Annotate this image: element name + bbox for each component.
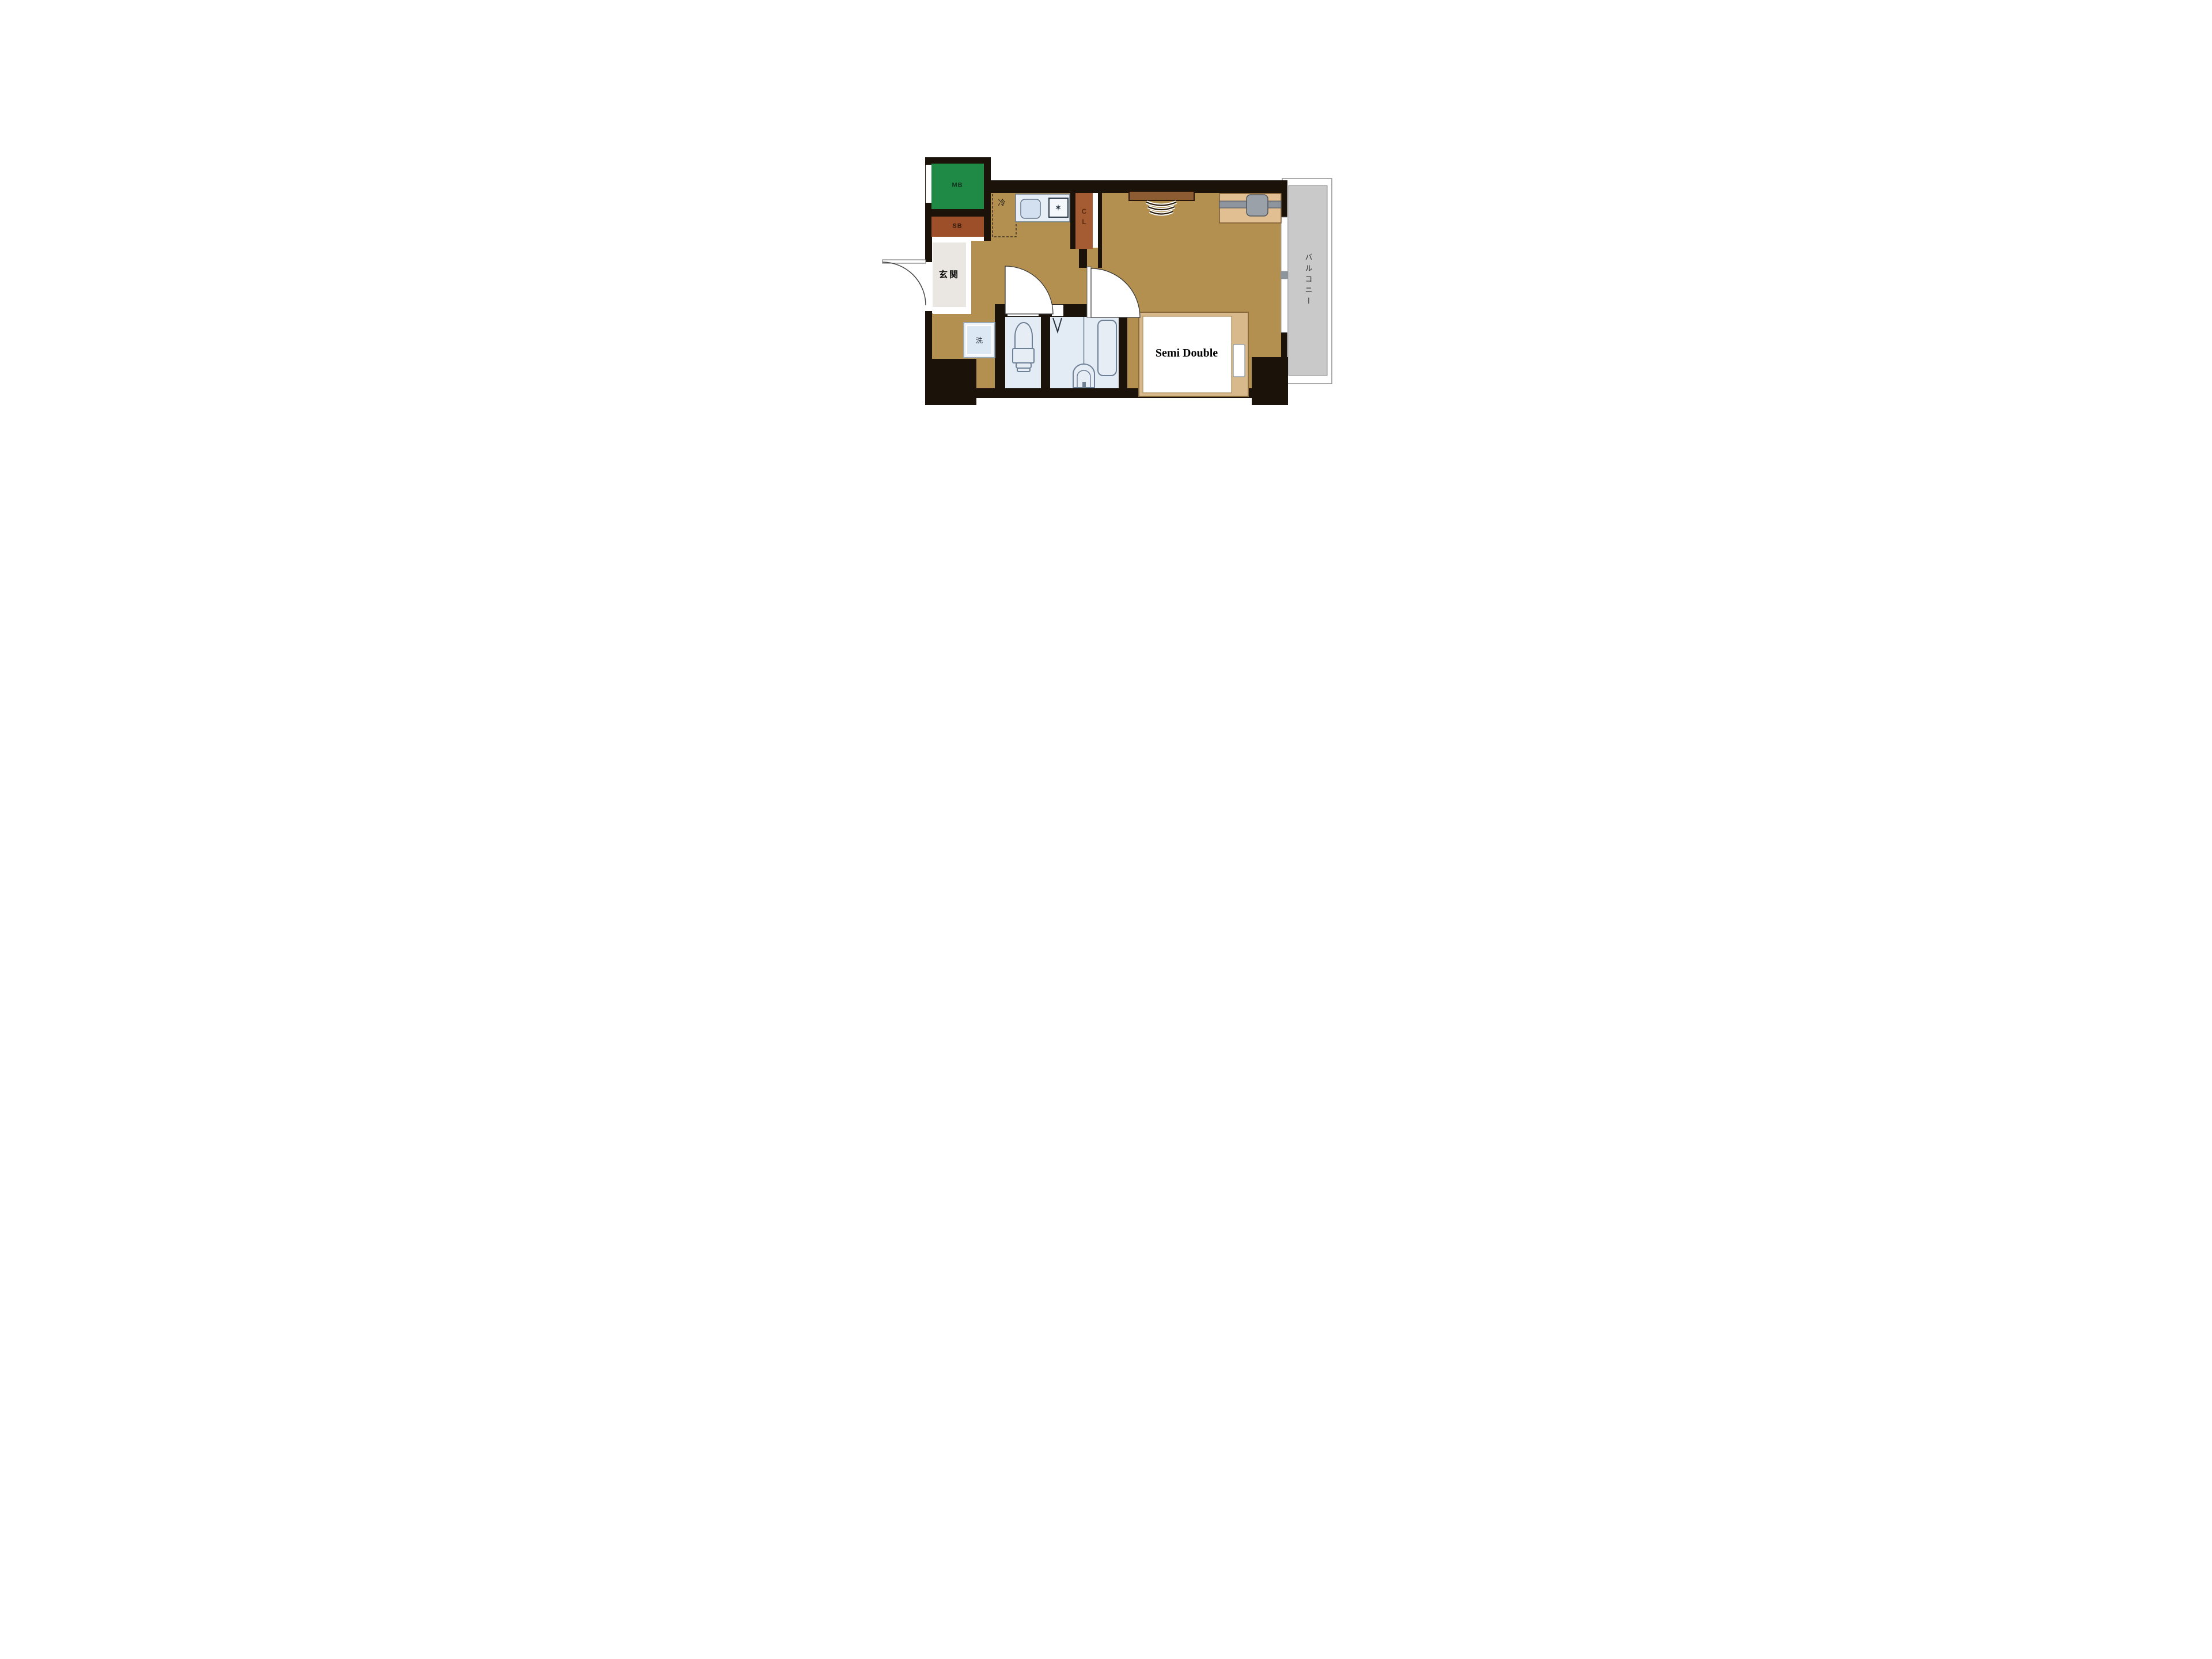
floor-plan-drawing (737, 0, 1475, 553)
entrance-label: 玄関 (939, 271, 960, 279)
balcony-windows (1281, 217, 1288, 332)
bathroom-door-opening (1052, 305, 1063, 316)
closet-label: CL (1081, 207, 1088, 228)
kitchen-sink (1021, 199, 1040, 218)
toilet-base (1016, 363, 1031, 368)
shelf-unit (1219, 194, 1281, 223)
washer-label: 洗 (976, 337, 983, 344)
floor-plan-canvas: MB SB 冷 CL 玄関 洗 Semi Double バルコニー ✶ (737, 0, 1475, 553)
balcony-label: バルコニー (1305, 253, 1312, 308)
stove-burner-icon: ✶ (1055, 204, 1062, 213)
room-door-leaf (1087, 267, 1091, 317)
wall-block-bottom-left (925, 359, 976, 405)
wall-segment (1098, 193, 1102, 268)
wall-segment (1079, 249, 1087, 268)
wall-block-bottom-right (1252, 357, 1288, 405)
bathtub (1098, 320, 1116, 376)
refrigerator-label: 冷 (998, 199, 1005, 207)
wall-segment (1070, 193, 1075, 249)
toilet-bowl (1015, 323, 1032, 350)
gap-right-of-entrance (966, 243, 971, 313)
entrance-door-swing (882, 262, 926, 305)
bed-size-label: Semi Double (1156, 347, 1218, 359)
gap-left-of-meter-box (926, 165, 931, 203)
entrance-door-opening (925, 262, 932, 311)
meter-box-label: MB (952, 183, 963, 189)
wall-segment (1041, 304, 1050, 398)
wall-segment (925, 311, 932, 363)
window-sliding-door (1281, 217, 1287, 271)
desk (1129, 191, 1194, 200)
wet-rooms (1005, 317, 1119, 388)
window-sliding-door (1281, 279, 1287, 332)
wall-segment-right (1281, 180, 1287, 217)
closet-door-track (1093, 193, 1098, 248)
shaft-box-label: SB (952, 224, 962, 230)
toilet-base (1017, 368, 1030, 372)
window-frame-divider (1281, 271, 1288, 279)
wall-segment (925, 157, 991, 164)
bathroom-tap (1082, 382, 1086, 387)
gap-below-shaft-box (933, 237, 971, 243)
shelf-center-unit (1247, 195, 1268, 216)
entrance-step-edge (933, 307, 971, 314)
wall-segment (995, 304, 1005, 398)
wall-segment (1119, 304, 1127, 398)
toilet-tank (1013, 349, 1034, 363)
wall-segment (931, 209, 984, 217)
wall-segment (984, 157, 991, 241)
wall-segment-right (1281, 332, 1287, 360)
bed-pillow (1233, 344, 1245, 377)
